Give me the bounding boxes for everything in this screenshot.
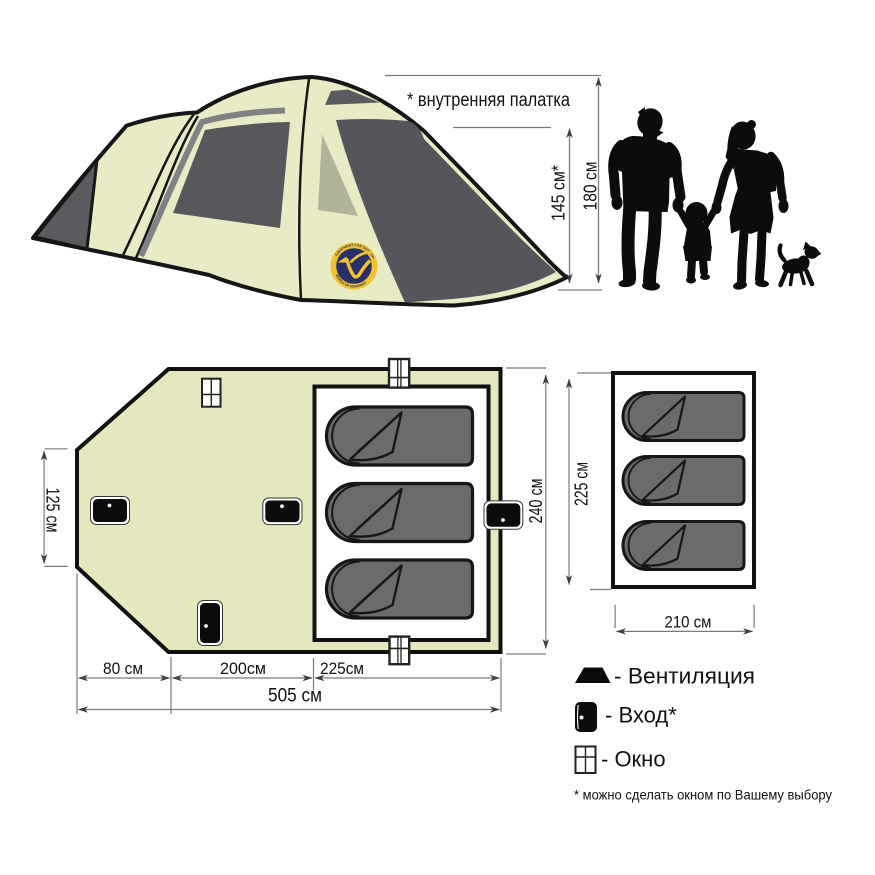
svg-text:145 см*: 145 см*: [549, 165, 569, 221]
svg-text:* внутренняя палатка: * внутренняя палатка: [407, 90, 570, 111]
svg-text:80 см: 80 см: [103, 659, 143, 678]
svg-text:125 см: 125 см: [43, 488, 63, 533]
svg-text:210 см: 210 см: [665, 613, 712, 632]
svg-text:- Окно: - Окно: [601, 747, 666, 772]
svg-text:200см: 200см: [220, 659, 266, 678]
svg-text:240 см: 240 см: [526, 479, 546, 524]
svg-text:225см: 225см: [320, 659, 364, 678]
svg-text:180 см: 180 см: [581, 162, 601, 211]
svg-text:- Вход*: - Вход*: [605, 703, 677, 728]
svg-text:225 см: 225 см: [572, 462, 592, 506]
svg-text:505 см: 505 см: [268, 686, 322, 707]
svg-text:- Вентиляция: - Вентиляция: [614, 664, 755, 689]
svg-text:* можно сделать окном по Вашем: * можно сделать окном по Вашему выбору: [574, 788, 832, 803]
